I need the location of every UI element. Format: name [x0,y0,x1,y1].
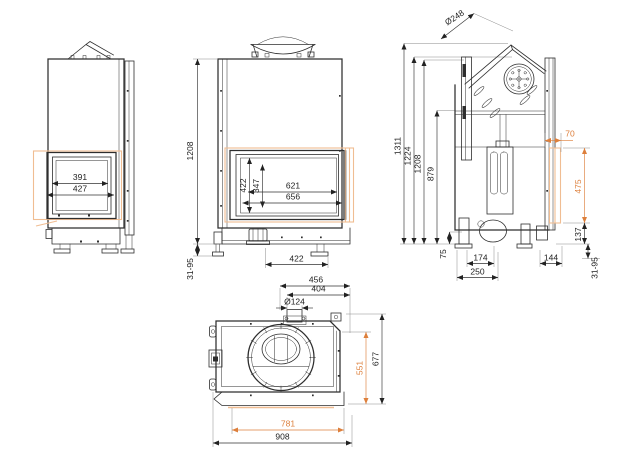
view-side-right: Ø248 1311 1224 1208 879 75 [393,7,601,281]
dim-label: 404 [311,284,325,294]
air-spigot [284,310,307,325]
dim-height-total: 1208 [185,59,222,244]
drawing-canvas: 391 427 [0,0,624,460]
dim-foot-range: 31-95 [185,244,213,280]
dim-height-top-edge: 1224 [403,57,513,244]
dim-label: 70 [565,129,575,139]
dim-label: 75 [438,249,448,259]
dim-glass-depth: 551 [342,332,371,404]
dim-label: Ø248 [443,7,466,27]
dim-label: 1208 [185,141,195,160]
dim-label: 621 [286,181,300,191]
dim-spigot-diameter: Ø124 [276,297,313,310]
body-outline [209,313,344,406]
dim-label: 31-95 [185,258,195,280]
internals [478,115,513,243]
dim-opening-height: 347 [251,165,263,208]
dim-label: 174 [473,253,487,263]
dim-label: 31-95 [590,257,600,279]
base-and-feet [213,228,351,256]
technical-drawing-page: 391 427 [0,0,624,460]
dim-label: 1311 [393,137,403,156]
dim-foot-range: 31-95 [582,244,600,279]
fan-unit [504,64,534,94]
view-side-left: 391 427 [34,42,135,254]
body-outline [218,59,342,228]
dim-front-width: 781 [232,408,344,434]
dim-glass-width: 391 [52,172,108,184]
dim-height-base-gap: 75 [438,232,462,259]
dim-glass-height: 422 [238,158,250,213]
dim-label: 391 [73,172,87,182]
dim-label: 250 [470,267,484,277]
dim-base-width: 422 [266,248,329,268]
dim-label: 908 [275,432,289,442]
dim-label: 422 [238,178,248,192]
dim-label: 347 [251,179,261,193]
dim-height-mid: 879 [426,111,456,245]
dim-flue-diameter: Ø248 [441,7,513,39]
side-glass-highlight [550,148,561,223]
dim-label: 879 [426,167,436,181]
dim-door-width: 427 [47,184,114,196]
dim-label: 475 [573,179,583,193]
dim-glass-width: 621 [248,181,337,193]
view-front: 422 347 621 656 [185,37,354,280]
dim-label: 781 [281,419,295,429]
dim-side-glass-height: 475 [563,148,590,223]
dim-label: 422 [289,254,303,264]
view-top: 456 404 Ø124 677 551 781 [209,275,386,448]
dim-height-body: 1208 [413,60,465,244]
dim-label: 677 [371,352,381,366]
dim-rear-depth: 144 [540,246,562,267]
dim-side-lower: 137 [556,223,590,244]
dim-label: 1224 [403,146,413,165]
dim-label: 656 [286,192,300,202]
flue-collar [251,37,315,57]
dim-label: 551 [355,361,365,375]
dim-label: 1208 [413,154,423,173]
base-and-feet [46,228,134,253]
dim-label: 427 [73,184,87,194]
dim-base-depth-front: 174 [467,246,494,267]
dim-label: 144 [544,253,558,263]
flue-outlet [247,323,316,392]
dim-label: Ø124 [284,297,305,307]
dim-label: 137 [573,227,583,241]
left-channel [462,57,472,160]
